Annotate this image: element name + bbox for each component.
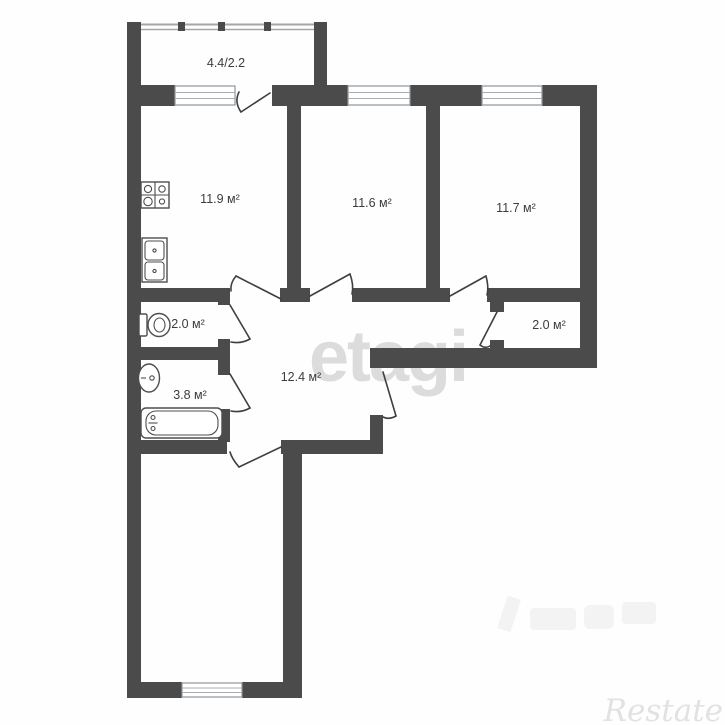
hallway-label: 12.4 м² — [281, 370, 322, 384]
wall-bottom-2 — [242, 682, 302, 698]
floor-plan: etagi — [0, 0, 725, 725]
kitchen-label: 11.9 м² — [200, 192, 240, 206]
wall-hall-north-2 — [280, 288, 310, 302]
wall-kitchen-room — [287, 106, 301, 288]
wall-bottomroom-right — [283, 440, 302, 698]
room-middle-label: 11.6 м² — [352, 196, 392, 210]
wall-bottomroom-top-1 — [127, 440, 227, 454]
bathroom-label: 3.8 м² — [173, 388, 207, 402]
bathtub-icon — [141, 408, 222, 438]
wall-bath-right-top — [218, 360, 230, 375]
wall-bottom-1 — [127, 682, 182, 698]
wall-room-room — [426, 106, 440, 293]
wc-label: 2.0 м² — [171, 317, 205, 331]
balcony-label: 4.4/2.2 — [207, 56, 245, 70]
wall-entry-band — [370, 348, 597, 368]
window-room-middle — [348, 86, 410, 105]
wall-wc-bath — [127, 347, 230, 360]
window-room-right — [482, 86, 542, 105]
toilet-icon — [139, 314, 170, 337]
wall-closet-left-top — [490, 302, 504, 312]
wall-top-2 — [272, 85, 348, 106]
restate-watermark: Restate — [603, 693, 723, 725]
closet-label: 2.0 м² — [532, 318, 566, 332]
wash-basin-icon — [139, 364, 160, 392]
floor-plan-page: etagi — [0, 0, 725, 725]
wall-hall-north-4 — [487, 288, 597, 302]
wall-top-3 — [410, 85, 482, 106]
wall-closet-left-bottom — [490, 340, 504, 350]
stove-icon — [141, 182, 169, 208]
wall-entry-vertical — [370, 415, 383, 454]
wall-balcony-right — [314, 22, 327, 86]
window-bottom-room — [182, 683, 242, 697]
wall-right-outer — [580, 85, 597, 368]
window-balcony-kitchen — [175, 86, 235, 105]
wall-wc-right-top — [218, 288, 230, 305]
kitchen-sink-icon — [142, 238, 167, 282]
room-right-label: 11.7 м² — [496, 201, 536, 215]
wall-hall-north-3 — [352, 288, 450, 302]
wall-top-1 — [127, 85, 175, 106]
wall-hall-north-1 — [127, 288, 230, 302]
